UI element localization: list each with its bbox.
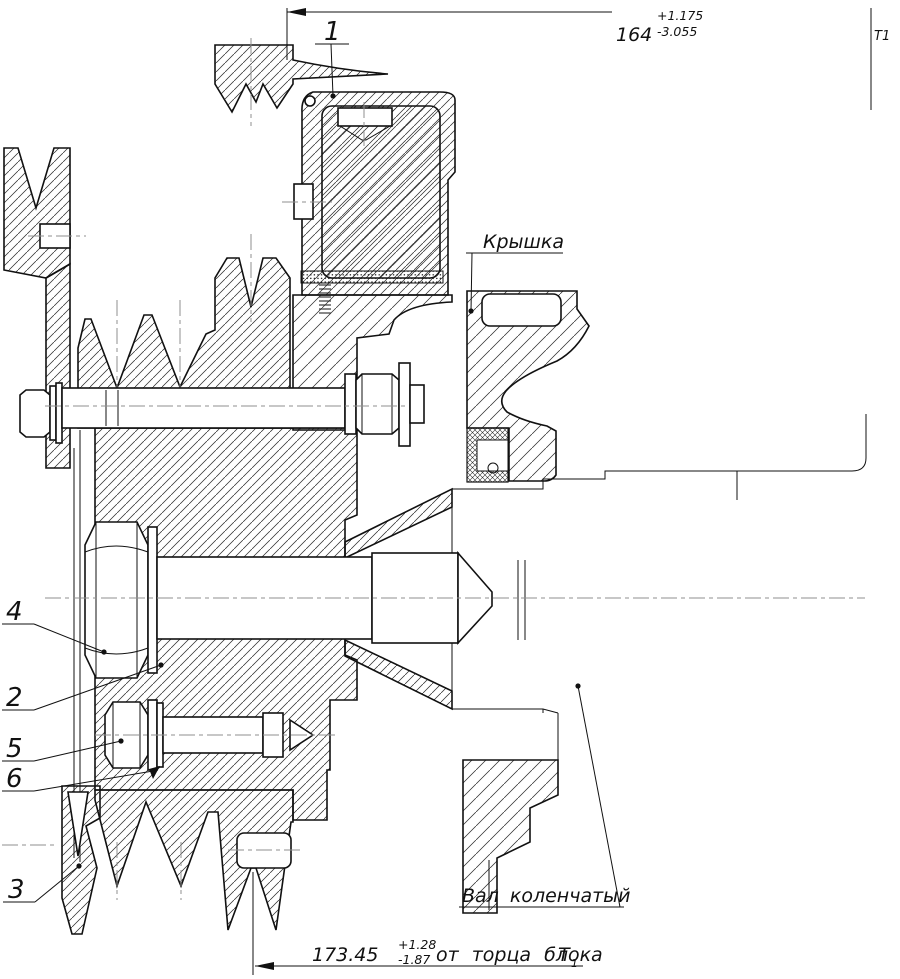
cover-label: Крышка bbox=[483, 231, 564, 253]
crankshaft-label: Вал коленчатый bbox=[462, 885, 631, 907]
bolt-recess bbox=[338, 108, 392, 126]
callout-5-label: 5 bbox=[6, 734, 23, 764]
callout-3-label: 3 bbox=[8, 875, 25, 905]
upper-bolt-washer-right bbox=[399, 363, 410, 446]
drawing-sheet: 164 +1.175 -3.055 T1 173.45 +1.28 -1.87 … bbox=[0, 0, 900, 979]
arrow-left-icon bbox=[255, 962, 274, 970]
callout-4-label: 4 bbox=[6, 597, 23, 627]
callout-1: 1 bbox=[315, 17, 349, 99]
central-bolt-washer bbox=[148, 527, 157, 673]
callout-6-label: 6 bbox=[6, 764, 23, 794]
aux-pulley-top bbox=[4, 148, 70, 278]
crankshaft bbox=[345, 414, 866, 913]
tensioner-block bbox=[282, 92, 455, 313]
datum-t1: T1 bbox=[871, 8, 890, 110]
shell-curl bbox=[305, 96, 315, 106]
aux-pulley bbox=[2, 148, 100, 934]
upper-bolt-washer-left bbox=[345, 374, 356, 434]
dim-bottom-plus: +1.28 bbox=[398, 937, 436, 952]
callout-1-label: 1 bbox=[324, 17, 341, 47]
crank-nose-wall-bottom bbox=[345, 640, 452, 709]
arrow-left-icon bbox=[287, 8, 306, 16]
left-bolt-head bbox=[20, 390, 50, 437]
dim-bottom-datum-index: 1 bbox=[571, 957, 578, 970]
cover-recess bbox=[482, 294, 561, 326]
dim-top-plus: +1.175 bbox=[657, 8, 703, 23]
engineering-drawing: 164 +1.175 -3.055 T1 173.45 +1.28 -1.87 … bbox=[0, 0, 900, 979]
dim-bottom-value: 173.45 bbox=[312, 944, 378, 966]
central-bolt-head bbox=[85, 522, 148, 678]
datum-t1-label: T1 bbox=[874, 29, 890, 44]
oil-seal-bore bbox=[477, 440, 508, 471]
dim-top-value: 164 bbox=[616, 24, 652, 46]
crank-nose-wall-top bbox=[345, 489, 452, 558]
cover bbox=[467, 291, 589, 482]
rubber-strip bbox=[301, 271, 443, 283]
dim-top-minus: -3.055 bbox=[657, 24, 697, 39]
crank-bottom-surface bbox=[452, 709, 558, 760]
callout-2-label: 2 bbox=[6, 683, 23, 713]
dimension-top: 164 +1.175 -3.055 bbox=[287, 8, 703, 60]
dim-bottom-minus: -1.87 bbox=[398, 952, 430, 967]
dim-bottom-datum: Т bbox=[558, 944, 571, 966]
upper-stud-end bbox=[410, 385, 424, 423]
upper-bolt-shank bbox=[62, 388, 345, 428]
